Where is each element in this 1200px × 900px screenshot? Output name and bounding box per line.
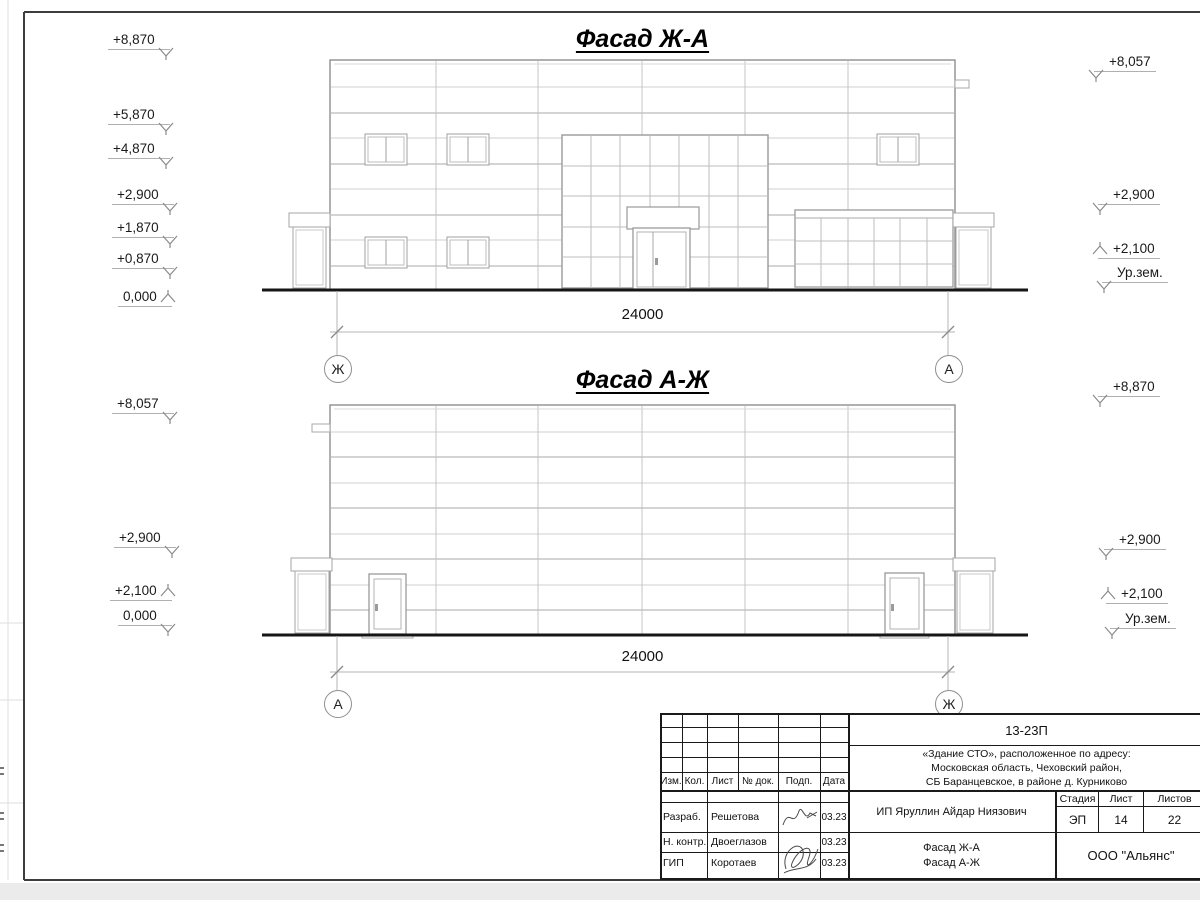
- level-mark-icon: [1092, 394, 1108, 407]
- axis-marker: А: [324, 690, 352, 718]
- level-mark-icon: [1092, 242, 1108, 255]
- client-name: ИП Яруллин Айдар Ниязович: [848, 791, 1055, 832]
- document-code: 13-23П: [848, 715, 1200, 745]
- facade2-title: Фасад А-Ж: [330, 366, 955, 395]
- elevation-mark: +2,900: [114, 529, 176, 546]
- level-mark-icon: [158, 122, 174, 135]
- sheet-margin: [0, 0, 24, 880]
- stamp-col-doc: № док.: [738, 772, 778, 790]
- drawing-name: Фасад Ж-А Фасад А-Ж: [848, 833, 1055, 878]
- entrance-sign: [627, 207, 699, 229]
- level-mark-icon: [158, 156, 174, 169]
- level-mark-icon: [1100, 587, 1116, 600]
- sheets-label: Листов: [1144, 791, 1200, 806]
- row-date: 03.23: [820, 803, 848, 831]
- signature-icon: [778, 833, 820, 878]
- level-mark-icon: [1098, 547, 1114, 560]
- level-mark-icon: [1104, 626, 1120, 639]
- stamp-col-data: Дата: [820, 772, 848, 790]
- level-mark-icon: [1088, 69, 1104, 82]
- facade1-dimension-value: 24000: [330, 306, 955, 323]
- stage-value: ЭП: [1057, 807, 1098, 832]
- elevation-mark: +2,900: [1104, 531, 1166, 548]
- row-name: Решетова: [711, 803, 777, 831]
- elevation-mark: +1,870: [112, 219, 174, 236]
- organization-name: ООО "Альянс": [1057, 833, 1200, 878]
- elevation-mark: Ур.зем.: [1110, 610, 1176, 627]
- elevation-mark: +5,870: [108, 106, 170, 123]
- row-role: ГИП: [663, 852, 707, 874]
- row-name: Двоеглазов: [711, 832, 777, 852]
- elevation-mark: 0,000: [118, 607, 172, 624]
- signature-icon: [779, 803, 819, 831]
- elevation-mark: +8,870: [108, 31, 170, 48]
- level-mark-icon: [160, 623, 176, 636]
- elevation-mark: +8,870: [1098, 378, 1160, 395]
- row-date: 03.23: [820, 832, 848, 852]
- stamp-col-izm: Изм.: [660, 772, 682, 790]
- level-mark-icon: [1096, 280, 1112, 293]
- level-mark-icon: [162, 202, 178, 215]
- level-mark-icon: [160, 584, 176, 597]
- level-mark-icon: [162, 411, 178, 424]
- elevation-mark: +0,870: [112, 250, 174, 267]
- title-block: Изм. Кол. Лист № док. Подп. Дата 13-23П …: [660, 713, 1200, 880]
- elevation-mark: +2,900: [112, 186, 174, 203]
- elevation-mark: +8,057: [112, 395, 174, 412]
- level-mark-icon: [1092, 202, 1108, 215]
- elevation-mark: 0,000: [118, 288, 172, 305]
- row-date: 03.23: [820, 852, 848, 874]
- level-mark-icon: [162, 235, 178, 248]
- back-door-left: [369, 574, 406, 634]
- sheets-total: 22: [1144, 807, 1200, 832]
- stamp-col-list: Лист: [707, 772, 738, 790]
- elevation-mark: +2,100: [110, 582, 172, 599]
- facade2-dimension-value: 24000: [330, 648, 955, 665]
- entrance-door: [633, 228, 690, 289]
- level-mark-icon: [162, 266, 178, 279]
- elevation-mark: +2,900: [1098, 186, 1160, 203]
- level-mark-icon: [160, 290, 176, 303]
- row-name: Коротаев: [711, 852, 777, 874]
- elevation-mark: +2,100: [1106, 585, 1168, 602]
- stamp-col-kol: Кол.: [682, 772, 707, 790]
- back-door-right: [885, 573, 924, 634]
- elevation-mark: +4,870: [108, 140, 170, 157]
- stamp-col-podp: Подп.: [778, 772, 820, 790]
- project-description: «Здание СТО», расположенное по адресу: М…: [848, 746, 1200, 790]
- row-role: Н. контр.: [663, 832, 707, 852]
- sheet-label: Лист: [1099, 791, 1143, 806]
- row-role: Разраб.: [663, 803, 707, 831]
- level-mark-icon: [164, 545, 180, 558]
- desk-background: [0, 883, 1200, 900]
- elevation-mark: +2,100: [1098, 240, 1160, 257]
- level-mark-icon: [158, 47, 174, 60]
- facade1-title: Фасад Ж-А: [330, 25, 955, 54]
- stage-label: Стадия: [1057, 791, 1098, 806]
- elevation-mark: +8,057: [1094, 53, 1156, 70]
- elevation-mark: Ур.зем.: [1102, 264, 1168, 281]
- sheet-number: 14: [1099, 807, 1143, 832]
